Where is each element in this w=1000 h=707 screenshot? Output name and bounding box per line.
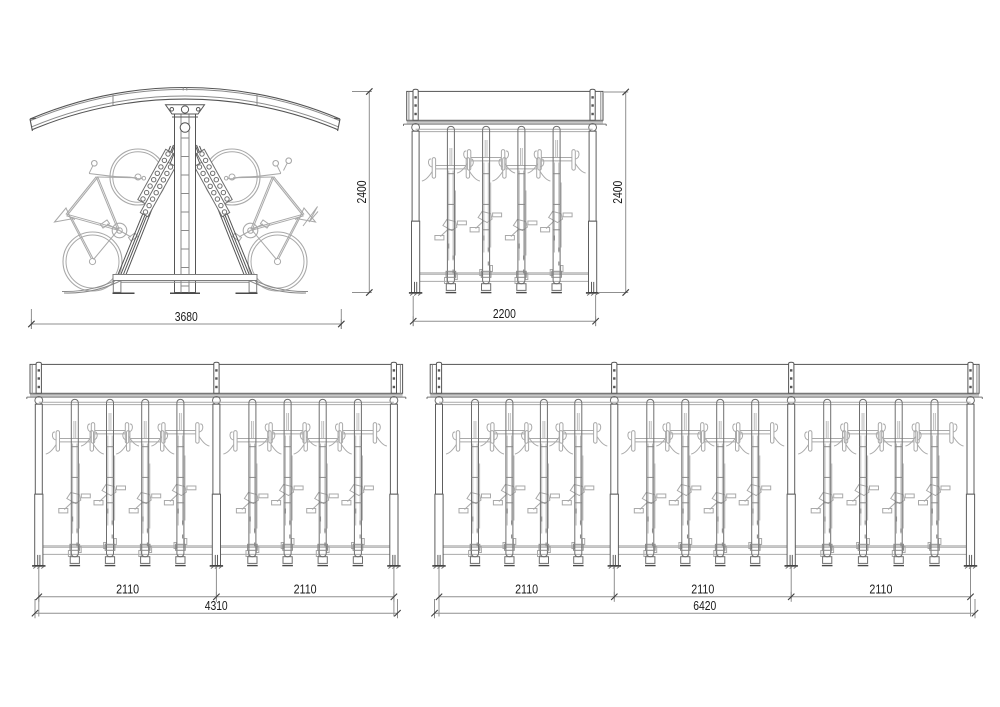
svg-text:2110: 2110 <box>515 582 538 597</box>
svg-text:2110: 2110 <box>116 582 139 597</box>
svg-text:2110: 2110 <box>869 582 892 597</box>
svg-text:2110: 2110 <box>294 582 317 597</box>
svg-text:2400: 2400 <box>610 181 625 204</box>
svg-text:2400: 2400 <box>354 181 369 204</box>
svg-text:6420: 6420 <box>693 598 716 613</box>
svg-text:4310: 4310 <box>205 598 228 613</box>
svg-text:3680: 3680 <box>175 309 198 324</box>
svg-text:2110: 2110 <box>691 582 714 597</box>
svg-text:2200: 2200 <box>493 306 516 321</box>
